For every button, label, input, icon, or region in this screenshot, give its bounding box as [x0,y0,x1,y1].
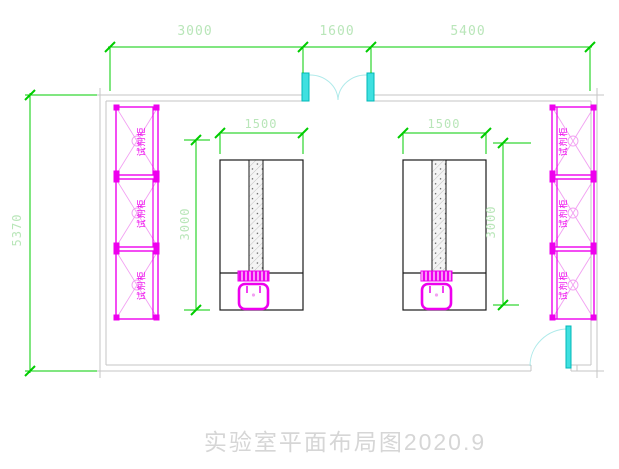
cabinet-box [114,249,159,320]
drawing-svg [0,0,619,469]
double-door [302,73,374,101]
bench-shelf-hatch [249,160,263,273]
sink [421,271,452,309]
cabinet-column-right [550,105,596,320]
cabinet-box [114,177,159,248]
single-door [530,326,571,368]
floorplan-canvas: 3000 1600 5400 5370 1500 3000 1500 3000 … [0,0,619,469]
cabinet-box [550,177,596,248]
door-jamb-right [367,73,374,101]
door-jamb-left [302,73,309,101]
dimension-lines [25,42,595,376]
cabinet-column-left [114,105,159,320]
cabinet-box [114,105,159,176]
sink [238,271,269,309]
bench-left [220,160,303,310]
cabinet-box [550,105,596,176]
bench-right [403,160,486,310]
door-leaf [566,326,571,368]
bench-shelf-hatch [432,160,446,273]
walls [93,88,604,378]
cabinet-box [550,249,596,320]
